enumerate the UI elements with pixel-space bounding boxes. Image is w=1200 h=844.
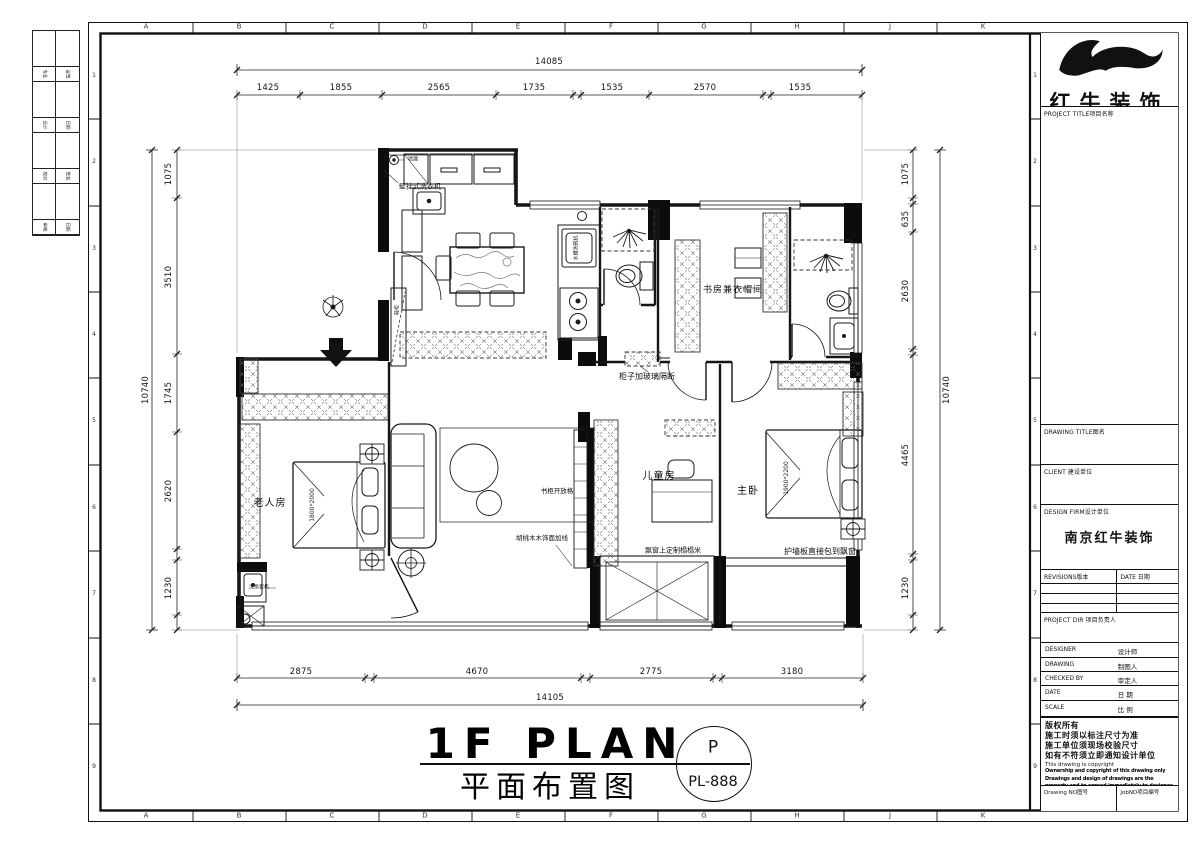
sig-cell: 审核 xyxy=(33,220,56,235)
scale-label-cn: 比 例 xyxy=(1118,704,1133,714)
sig-label: 设计 xyxy=(41,121,47,130)
room-label-study: 书房兼衣帽间 xyxy=(703,287,763,296)
grid-letter-top: G xyxy=(701,24,706,31)
checked-label-en: CHECKED BY xyxy=(1045,675,1083,682)
sig-cell: 校对 xyxy=(33,169,56,184)
drawing-sheet: { "frame": { "letters": ["A","B","C","D"… xyxy=(0,0,1200,844)
room-label-master: 主卧 xyxy=(737,487,759,497)
grid-number-right: 2 xyxy=(1033,159,1037,165)
plan-title-cn: 平面布置图 xyxy=(460,773,640,803)
entry-symbols xyxy=(320,295,352,367)
sig-cell xyxy=(56,184,79,220)
dim-top: 2570 xyxy=(694,84,716,93)
note-washer: 壁挂式洗衣机 xyxy=(399,184,441,191)
dim-left: 2620 xyxy=(165,480,174,502)
grid-letter-top: C xyxy=(330,24,335,31)
dim-right: 2630 xyxy=(902,280,911,302)
copyright-line: 施工时须以标注尺寸为准 xyxy=(1045,731,1174,741)
numbers-row: Drawing NO图号 JobNO项目编号 xyxy=(1041,786,1178,811)
grid-number-right: 4 xyxy=(1033,332,1037,338)
grid-letter-bottom: F xyxy=(609,813,613,820)
sig-cell: 日期 xyxy=(56,220,79,235)
company-logo-icon xyxy=(1041,33,1178,81)
grid-letter-bottom: C xyxy=(330,813,335,820)
sig-cell xyxy=(33,133,56,169)
dim-bottom: 3180 xyxy=(781,668,803,677)
title-block: 红牛装饰 PROJECT TITLE项目名称 DRAWING TITLE图名 C… xyxy=(1040,33,1178,811)
grid-number-right: 9 xyxy=(1033,764,1037,770)
dim-left-overall: 10740 xyxy=(142,376,151,404)
company-name: 红牛装饰 xyxy=(1041,87,1178,107)
date-label-cn: 日 期 xyxy=(1118,689,1133,699)
dim-right: 1075 xyxy=(902,163,911,185)
grid-number-left: 3 xyxy=(92,246,96,252)
client-box: CLIENT 建设单位 xyxy=(1041,465,1178,505)
grid-number-left: 9 xyxy=(92,764,96,770)
design-firm-label: DESIGN FIRM设计单位 xyxy=(1044,507,1109,516)
drawing-label-en: DRAWING xyxy=(1045,661,1074,668)
job-no-label: JobNO项目编号 xyxy=(1120,788,1178,796)
dim-top: 1425 xyxy=(257,84,279,93)
sig-cell xyxy=(56,31,79,67)
dim-right: 4465 xyxy=(902,444,911,466)
copyright-line: 版权所有 xyxy=(1045,721,1174,731)
sig-label: 专业 xyxy=(41,70,47,79)
grid-letter-bottom: J xyxy=(889,813,891,820)
note-walnut: 胡桃木木饰面加线 xyxy=(516,535,568,542)
dim-bottom-overall: 14105 xyxy=(536,694,564,703)
grid-number-right: 5 xyxy=(1033,418,1037,424)
dim-top: 1735 xyxy=(523,84,545,93)
grid-letter-top: J xyxy=(889,24,891,31)
drawing-title-box: DRAWING TITLE图名 xyxy=(1041,425,1178,465)
sig-label: 会签 xyxy=(65,70,71,79)
dim-top: 1855 xyxy=(330,84,352,93)
sig-cell xyxy=(33,184,56,220)
plant-icon xyxy=(323,295,343,317)
dim-bottom: 2875 xyxy=(290,668,312,677)
master-room-furniture xyxy=(766,430,865,539)
drawing-row: DRAWING制图人 xyxy=(1041,658,1178,672)
dim-right: 1230 xyxy=(902,577,911,599)
client-label: CLIENT 建设单位 xyxy=(1044,467,1092,476)
grid-number-left: 4 xyxy=(92,332,96,338)
designer-row: DESIGNER设计师 xyxy=(1041,643,1178,658)
grid-number-left: 2 xyxy=(92,159,96,165)
drawing-no-label: Drawing NO图号 xyxy=(1044,788,1116,796)
checked-row: CHECKED BY审定人 xyxy=(1041,672,1178,686)
grid-letter-top: H xyxy=(794,24,799,31)
note-sink: 水槽洗碗机 xyxy=(575,235,580,260)
grid-number-right: 3 xyxy=(1033,246,1037,252)
design-firm-box: DESIGN FIRM设计单位 南京红牛装饰 xyxy=(1041,505,1178,570)
copyright-small-line: Drawings and design of drawings are the xyxy=(1045,776,1174,784)
dim-top: 1535 xyxy=(789,84,811,93)
note-wall-panel: 护墙板直接包到飘窗 xyxy=(784,548,856,556)
copyright-box: 版权所有 施工时须以标注尺寸为准 施工单位须现场校验尺寸 如有不符须立即通知设计… xyxy=(1041,718,1178,786)
sig-cell: 日期 xyxy=(56,118,79,133)
bed-size-master: 1900*2200 xyxy=(784,461,790,495)
copyright-small-line: Ownership and copyright of this drawing … xyxy=(1045,768,1174,776)
interior-walls-doors xyxy=(389,207,858,624)
sig-cell xyxy=(56,82,79,118)
grid-number-left: 5 xyxy=(92,418,96,424)
sig-cell: 签名 xyxy=(56,169,79,184)
copyright-line: 施工单位须现场校验尺寸 xyxy=(1045,741,1174,751)
sig-cell: 专业 xyxy=(33,67,56,82)
grid-letter-top: A xyxy=(144,24,149,31)
grid-letter-top: B xyxy=(237,24,242,31)
grid-number-left: 1 xyxy=(92,73,96,79)
note-washer-dryer: 洗烘套机 xyxy=(249,586,269,591)
grid-number-right: 7 xyxy=(1033,591,1037,597)
grid-number-right: 6 xyxy=(1033,505,1037,511)
date-col-label: DATE 日期 xyxy=(1120,572,1150,581)
grid-letter-bottom: B xyxy=(237,813,242,820)
project-dir-box: PROJECT DIR 项目负责人 xyxy=(1041,613,1178,643)
date-label-en: DATE xyxy=(1045,689,1061,696)
sig-cell: 会签 xyxy=(56,67,79,82)
drawing-label-cn: 制图人 xyxy=(1118,661,1138,671)
designer-label-en: DESIGNER xyxy=(1045,646,1076,653)
sig-label: 校对 xyxy=(41,172,47,181)
dim-right: 635 xyxy=(902,211,911,228)
dim-right-overall: 10740 xyxy=(943,376,952,404)
sig-cell xyxy=(56,133,79,169)
bed-size-elder: 1800*2000 xyxy=(310,488,316,522)
design-firm-value: 南京红牛装饰 xyxy=(1041,527,1178,546)
date-row: DATE日 期 xyxy=(1041,686,1178,701)
grid-number-left: 6 xyxy=(92,505,96,511)
project-dir-label: PROJECT DIR 项目负责人 xyxy=(1044,615,1116,624)
grid-number-right: 8 xyxy=(1033,678,1037,684)
grid-letter-top: F xyxy=(609,24,613,31)
grid-letter-top: K xyxy=(981,24,986,31)
grid-number-left: 7 xyxy=(92,591,96,597)
elder-room-furniture xyxy=(293,444,385,570)
checked-label-cn: 审定人 xyxy=(1118,675,1138,685)
dim-left: 1230 xyxy=(165,577,174,599)
bubble-letter: P xyxy=(708,740,718,757)
grid-number-right: 1 xyxy=(1033,73,1037,79)
sig-label: 日期 xyxy=(65,223,71,232)
sig-cell: 设计 xyxy=(33,118,56,133)
dim-top-overall: 14085 xyxy=(535,58,563,67)
copyright-line: 如有不符须立即通知设计单位 xyxy=(1045,751,1174,761)
grid-letter-top: E xyxy=(516,24,520,31)
sig-label: 审核 xyxy=(41,223,47,232)
room-label-child: 儿童房 xyxy=(643,472,676,482)
dining-set xyxy=(436,233,524,306)
dim-bottom: 4670 xyxy=(466,668,488,677)
dim-left: 1075 xyxy=(165,163,174,185)
dim-bottom: 2775 xyxy=(640,668,662,677)
bubble-number: PL-888 xyxy=(688,775,737,790)
grid-letter-bottom: E xyxy=(516,813,520,820)
scale-label-en: SCALE xyxy=(1045,704,1064,711)
revisions-box: REVISIONS版本 DATE 日期 xyxy=(1041,570,1178,613)
dim-top: 1535 xyxy=(601,84,623,93)
grid-letter-bottom: D xyxy=(422,813,427,820)
room-label-elder: 老人房 xyxy=(254,499,287,509)
project-title-label: PROJECT TITLE项目名称 xyxy=(1044,109,1114,118)
note-shoe-cabinet: 鞋柜 xyxy=(396,305,401,315)
grid-number-left: 8 xyxy=(92,678,96,684)
note-glass-partition: 柜子加玻璃隔断 xyxy=(619,373,675,381)
scale-row: SCALE比 例 xyxy=(1041,701,1178,718)
dim-top: 2565 xyxy=(428,84,450,93)
sig-label: 日期 xyxy=(65,121,71,130)
drawing-title-label: DRAWING TITLE图名 xyxy=(1044,427,1105,436)
grid-letter-bottom: H xyxy=(794,813,799,820)
dim-left: 3510 xyxy=(165,266,174,288)
sig-label: 签名 xyxy=(65,172,71,181)
grid-letter-bottom: A xyxy=(144,813,149,820)
designer-label-cn: 设计师 xyxy=(1118,646,1138,656)
signature-strip: 专业 会签 设计 日期 校对 签名 审核 日期 xyxy=(32,30,80,236)
grid-letter-bottom: K xyxy=(981,813,986,820)
project-title-box: PROJECT TITLE项目名称 xyxy=(1041,107,1178,425)
sig-cell xyxy=(33,31,56,67)
sig-cell xyxy=(33,82,56,118)
plan-title-en: 1F PLAN xyxy=(426,723,687,765)
grid-letter-bottom: G xyxy=(701,813,706,820)
entry-arrow-icon xyxy=(320,338,352,367)
note-drain: 地漏 xyxy=(408,158,418,163)
note-tatami: 飘窗上定制榻榻米 xyxy=(645,548,701,555)
floor-plan xyxy=(100,33,1030,811)
revisions-label: REVISIONS版本 xyxy=(1044,572,1088,581)
logo-box: 红牛装饰 xyxy=(1041,33,1178,107)
dim-left: 1745 xyxy=(165,382,174,404)
note-bookshelf: 书柜开放格 xyxy=(541,488,574,495)
grid-letter-top: D xyxy=(422,24,427,31)
